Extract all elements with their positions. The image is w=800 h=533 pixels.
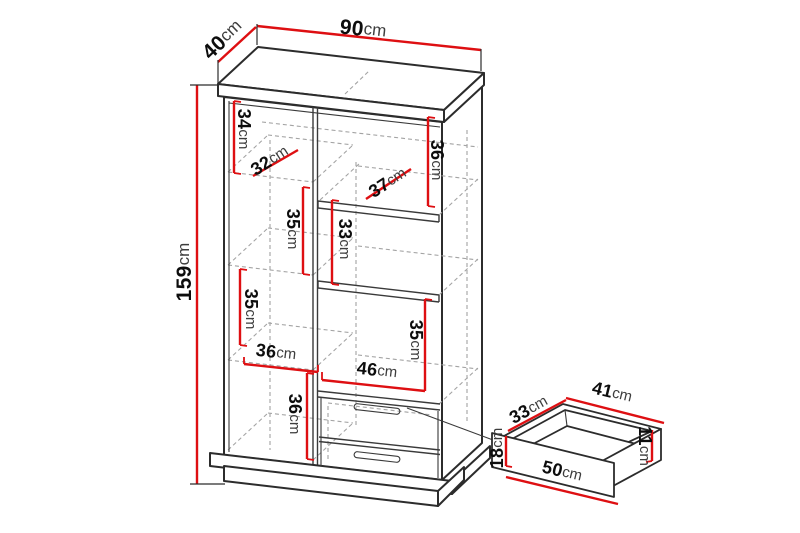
dim-tick-35c [425,299,432,300]
furniture-dimension-diagram: 40cm 90cm 159cm 34cm 32cm 36cm 37cm 35cm… [0,0,800,533]
dim-label-drawer-front-height: 18cm [487,428,507,469]
dim-label-upper-right-height: 36cm [427,140,447,181]
dim-label-drawer-side-height: 11cm [635,426,655,466]
dim-label-bottom-left-height: 36cm [285,394,305,435]
dim-label-left-lower-height: 35cm [241,289,261,330]
dim-label-left-mid-height: 35cm [283,209,303,250]
dim-tick-18 [506,466,512,467]
dim-label-upper-left-height: 34cm [234,109,254,150]
dim-label-right-lower-height: 35cm [406,320,426,361]
diagram-canvas: 40cm 90cm 159cm 34cm 32cm 36cm 37cm 35cm… [0,0,800,533]
dim-label-height-total: 159cm [173,243,196,302]
dim-label-right-mid-height: 33cm [335,219,355,260]
